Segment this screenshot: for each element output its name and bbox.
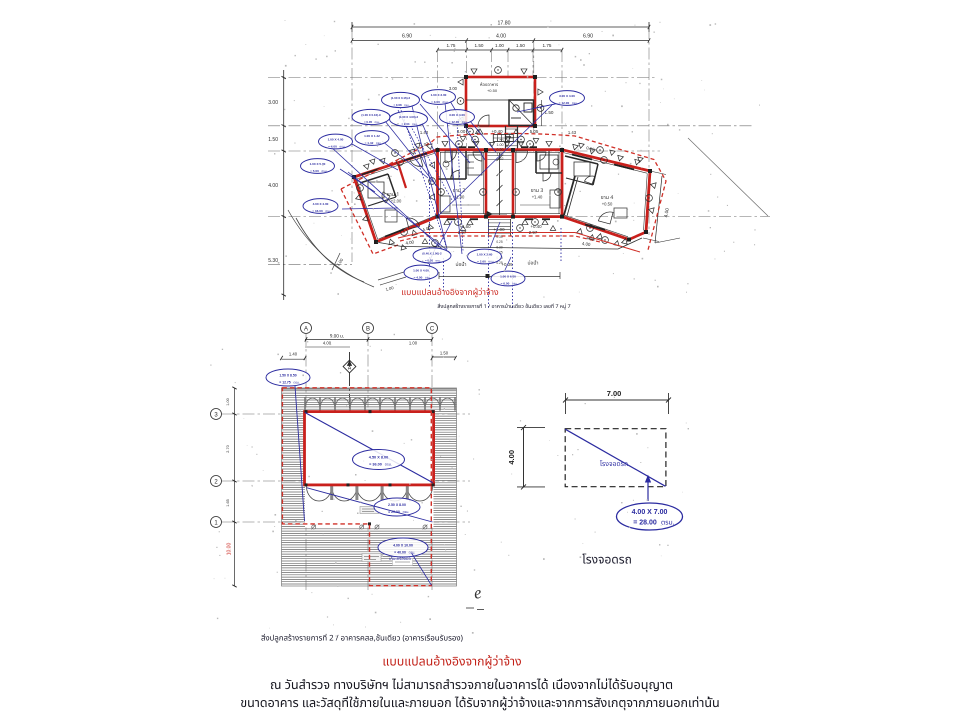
svg-text:7.00: 7.00	[607, 389, 622, 398]
svg-text:(1.00 X 0.16)-9: (1.00 X 0.16)-9	[361, 113, 381, 117]
svg-text:1.43: 1.43	[568, 130, 577, 135]
svg-text:+0.40: +0.40	[530, 224, 542, 229]
svg-text:1.50: 1.50	[516, 43, 525, 48]
svg-text:0.30: 0.30	[496, 235, 502, 239]
svg-text:17.80: 17.80	[498, 21, 511, 27]
svg-text:+1.40: +1.40	[532, 195, 543, 200]
svg-text:+0.40: +0.40	[491, 129, 503, 134]
svg-text:= 12.00: = 12.00	[449, 120, 460, 124]
svg-text:4.00: 4.00	[405, 239, 415, 245]
svg-text:+2.00: +2.00	[391, 199, 402, 204]
svg-text:A: A	[304, 327, 308, 333]
svg-text:(1.00 X 4.00)-2: (1.00 X 4.00)-2	[399, 115, 419, 119]
svg-text:= 16.00: = 16.00	[312, 209, 323, 213]
svg-text:4.00: 4.00	[663, 207, 671, 218]
svg-text:1.00: 1.00	[226, 398, 230, 405]
svg-text:e: e	[472, 583, 484, 603]
svg-text:1.00 X 4.00: 1.00 X 4.00	[413, 268, 429, 272]
svg-text:1.00: 1.00	[409, 341, 418, 346]
svg-text:3.00: 3.00	[449, 86, 458, 91]
svg-text:= 0.20: = 0.20	[425, 259, 434, 263]
svg-text:= 28.00: = 28.00	[633, 520, 657, 527]
svg-text:= 36.00: = 36.00	[369, 463, 382, 467]
svg-text:4.00: 4.00	[582, 241, 592, 247]
svg-text:2: 2	[214, 480, 218, 486]
svg-text:+1.60: +1.60	[459, 224, 471, 229]
svg-text:1: 1	[214, 521, 218, 527]
svg-text:1.00: 1.00	[495, 43, 504, 48]
svg-text:1.75: 1.75	[543, 43, 552, 48]
svg-text:= 12.00: = 12.00	[559, 101, 570, 105]
svg-text:+0.50: +0.50	[602, 202, 613, 207]
svg-text:= 1.42: = 1.42	[365, 141, 374, 145]
svg-text:= 2.60: = 2.60	[477, 260, 486, 264]
svg-text:= 6.00: = 6.00	[501, 282, 510, 286]
svg-text:1.75: 1.75	[447, 43, 456, 48]
svg-text:6.90: 6.90	[583, 34, 593, 40]
svg-text:= 2.01: = 2.01	[401, 122, 410, 126]
svg-text:1.50: 1.50	[497, 139, 504, 143]
svg-text:2.97: 2.97	[529, 230, 538, 235]
svg-text:0.25: 0.25	[496, 240, 502, 244]
svg-text:1.00: 1.00	[497, 143, 504, 147]
svg-text:3.00: 3.00	[457, 129, 466, 134]
svg-text:+1.00: +1.00	[493, 227, 505, 232]
svg-text:3.00 X 4.00: 3.00 X 4.00	[449, 113, 465, 117]
svg-text:4.00: 4.00	[507, 450, 516, 465]
svg-text:= 0.05: = 0.05	[364, 120, 373, 124]
svg-text:3.00 X 4.00: 3.00 X 4.00	[559, 94, 575, 98]
svg-text:= 4.00: = 4.00	[414, 276, 423, 280]
svg-text:(1.00 X 0.16)-2: (1.00 X 0.16)-2	[391, 96, 411, 100]
svg-text:4.00: 4.00	[268, 183, 278, 189]
svg-text:= 4.00: = 4.00	[328, 145, 337, 149]
svg-text:= 3.00: = 3.00	[431, 100, 440, 104]
svg-text:4.00: 4.00	[496, 34, 506, 40]
svg-text:10.00: 10.00	[227, 543, 233, 556]
svg-text:+0.50: +0.50	[487, 88, 498, 93]
svg-text:1.50: 1.50	[475, 43, 484, 48]
svg-text:1.00 X 1.42: 1.00 X 1.42	[364, 134, 380, 138]
svg-text:1.00: 1.00	[385, 285, 395, 292]
svg-text:6.90: 6.90	[402, 34, 412, 40]
svg-text:1.00: 1.00	[335, 257, 344, 267]
svg-text:3.00: 3.00	[268, 100, 278, 106]
svg-text:4.50 X 8.00: 4.50 X 8.00	[369, 455, 388, 459]
svg-text:3: 3	[214, 413, 218, 419]
svg-text:= 12.75: = 12.75	[279, 381, 291, 385]
svg-text:C: C	[430, 327, 435, 333]
svg-text:2.70: 2.70	[226, 445, 230, 452]
svg-text:1.65: 1.65	[226, 499, 230, 506]
svg-text:1.50: 1.50	[268, 137, 278, 143]
svg-text:B: B	[366, 327, 370, 333]
svg-text:1.00 X 4.00: 1.00 X 4.00	[328, 137, 344, 141]
svg-text:1.50: 1.50	[440, 351, 449, 356]
svg-text:4.00 X 4.00: 4.00 X 4.00	[313, 202, 329, 206]
svg-text:= 40.00: = 40.00	[394, 551, 406, 555]
svg-text:1.00 X 2.60: 1.00 X 2.60	[477, 252, 493, 256]
svg-text:0.30: 0.30	[496, 245, 502, 249]
svg-text:1.50 X 8.50: 1.50 X 8.50	[279, 373, 296, 377]
svg-text:1.40: 1.40	[289, 352, 298, 357]
svg-text:5.05: 5.05	[530, 129, 539, 134]
svg-text:(0.40 X 1.00)-2: (0.40 X 1.00)-2	[422, 251, 442, 255]
svg-text:5.30: 5.30	[268, 258, 278, 264]
svg-text:= 0.08: = 0.08	[393, 103, 402, 107]
svg-text:= 5.00: = 5.00	[310, 169, 319, 173]
svg-text:1.43: 1.43	[420, 130, 429, 135]
svg-text:2.50 X 8.00: 2.50 X 8.00	[388, 503, 406, 507]
svg-text:0.50: 0.50	[497, 148, 504, 152]
svg-text:1.00 X 6.00: 1.00 X 6.00	[500, 274, 516, 278]
svg-text:4.00 X 7.00: 4.00 X 7.00	[632, 509, 668, 516]
svg-text:4.00 X 10.00: 4.00 X 10.00	[393, 543, 413, 547]
svg-text:1.00 X 3.00: 1.00 X 3.00	[431, 93, 447, 97]
